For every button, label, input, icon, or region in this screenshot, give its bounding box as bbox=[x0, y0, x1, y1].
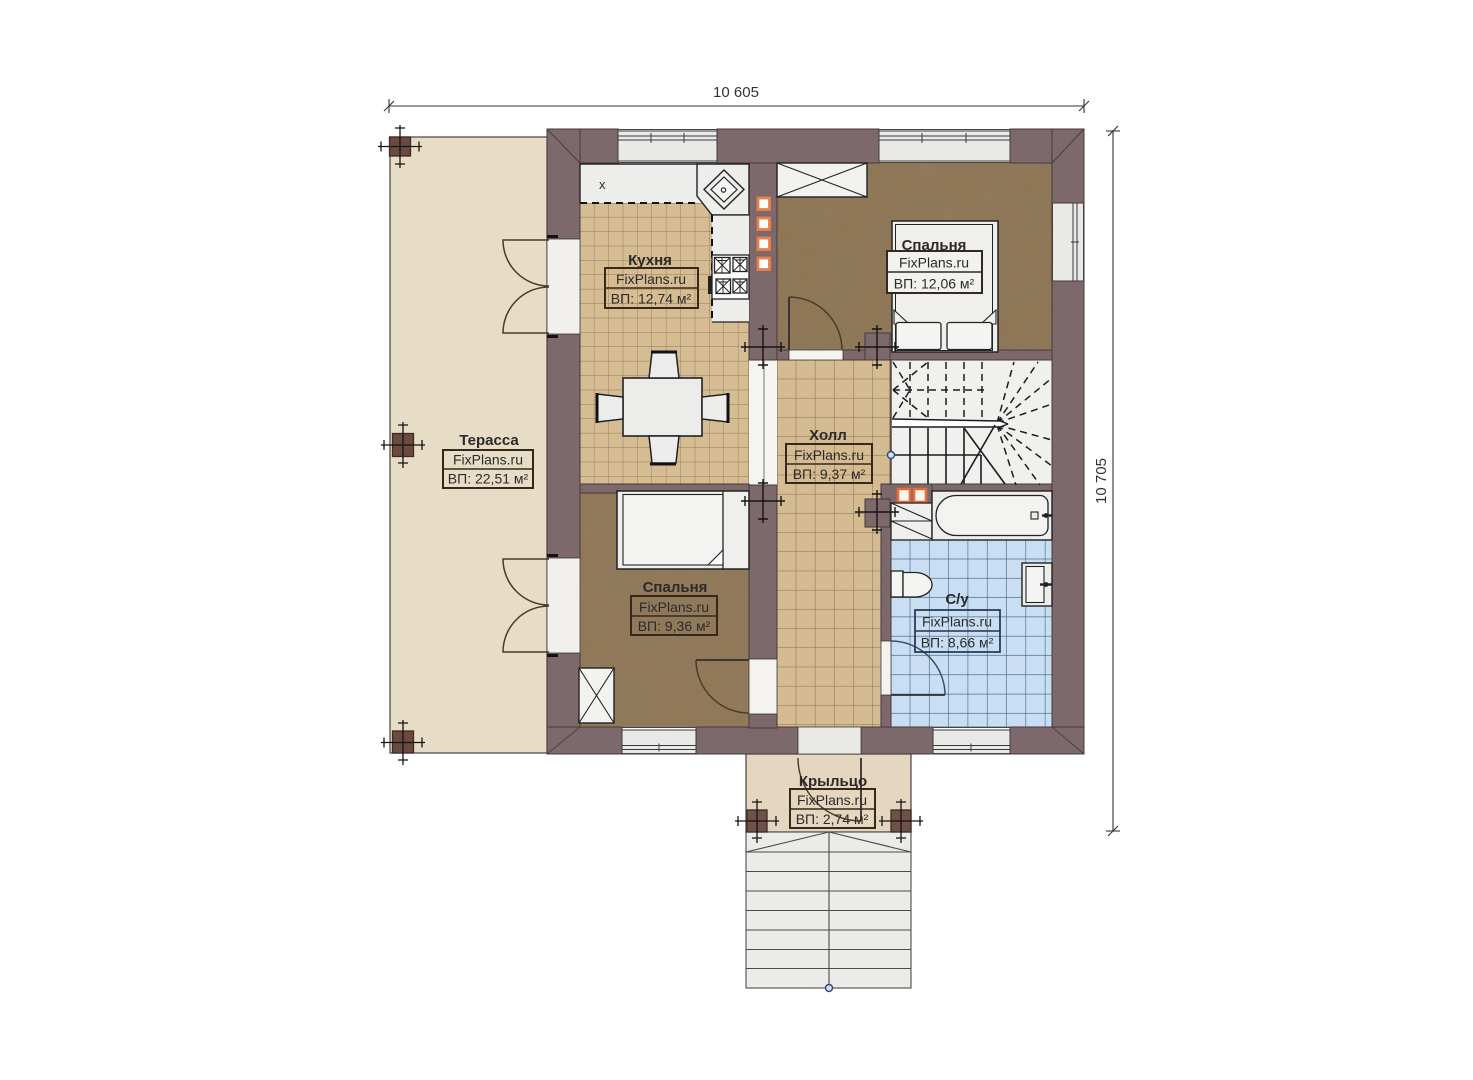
svg-text:Терасса: Терасса bbox=[459, 432, 519, 449]
svg-text:Холл: Холл bbox=[809, 427, 847, 444]
svg-text:x: x bbox=[599, 177, 606, 192]
svg-text:Кухня: Кухня bbox=[628, 252, 672, 269]
svg-text:ВП: 9,37 м²: ВП: 9,37 м² bbox=[793, 466, 866, 482]
svg-text:С/у: С/у bbox=[945, 591, 969, 608]
svg-text:ВП: 12,06 м²: ВП: 12,06 м² bbox=[894, 276, 975, 292]
svg-text:ВП: 9,36 м²: ВП: 9,36 м² bbox=[638, 618, 711, 634]
svg-text:Крыльцо: Крыльцо bbox=[799, 773, 867, 790]
svg-text:ВП: 22,51 м²: ВП: 22,51 м² bbox=[448, 471, 529, 487]
svg-text:FixPlans.ru: FixPlans.ru bbox=[797, 792, 867, 808]
svg-text:FixPlans.ru: FixPlans.ru bbox=[616, 271, 686, 287]
svg-text:FixPlans.ru: FixPlans.ru bbox=[639, 599, 709, 615]
svg-text:ВП: 8,66 м²: ВП: 8,66 м² bbox=[921, 635, 994, 651]
svg-text:10 705: 10 705 bbox=[1093, 458, 1110, 504]
svg-text:10 605: 10 605 bbox=[713, 84, 759, 101]
svg-text:Спальня: Спальня bbox=[643, 579, 708, 596]
svg-text:FixPlans.ru: FixPlans.ru bbox=[794, 447, 864, 463]
svg-text:ВП: 2,74 м²: ВП: 2,74 м² bbox=[796, 811, 869, 827]
svg-text:FixPlans.ru: FixPlans.ru bbox=[899, 255, 969, 271]
svg-text:ВП: 12,74 м²: ВП: 12,74 м² bbox=[611, 291, 692, 307]
svg-text:FixPlans.ru: FixPlans.ru bbox=[453, 452, 523, 468]
svg-text:FixPlans.ru: FixPlans.ru bbox=[922, 614, 992, 630]
